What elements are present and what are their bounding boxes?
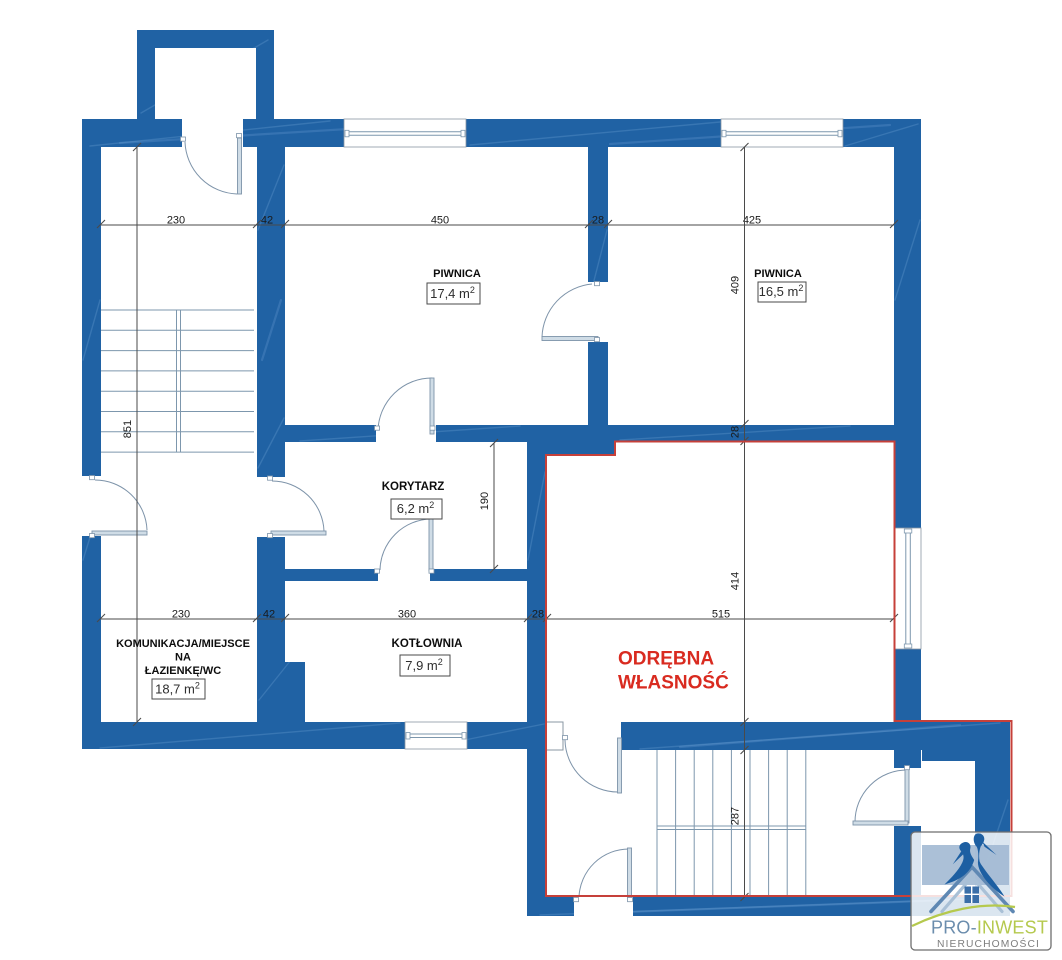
svg-text:28: 28 — [730, 426, 742, 438]
svg-text:WŁASNOŚĆ: WŁASNOŚĆ — [618, 672, 729, 694]
svg-text:190: 190 — [479, 492, 491, 510]
svg-text:PIWNICA: PIWNICA — [754, 268, 802, 280]
svg-text:42: 42 — [261, 215, 273, 227]
svg-text:450: 450 — [431, 215, 449, 227]
svg-text:ŁAZIENKĘ/WC: ŁAZIENKĘ/WC — [145, 665, 221, 677]
svg-text:28: 28 — [592, 215, 604, 227]
svg-text:230: 230 — [172, 609, 190, 621]
svg-text:PRO-INWEST: PRO-INWEST — [931, 918, 1048, 938]
svg-text:NA: NA — [175, 652, 191, 664]
svg-text:6,2 m2: 6,2 m2 — [397, 500, 435, 516]
svg-text:42: 42 — [263, 609, 275, 621]
svg-text:360: 360 — [398, 609, 416, 621]
svg-text:KORYTARZ: KORYTARZ — [382, 481, 445, 493]
svg-text:KOTŁOWNIA: KOTŁOWNIA — [392, 638, 463, 650]
svg-text:PIWNICA: PIWNICA — [433, 268, 481, 280]
svg-text:17,4 m2: 17,4 m2 — [430, 285, 475, 301]
svg-text:18,7 m2: 18,7 m2 — [155, 681, 200, 697]
svg-text:414: 414 — [730, 572, 742, 590]
svg-text:ODRĘBNA: ODRĘBNA — [618, 649, 714, 670]
svg-text:515: 515 — [712, 609, 730, 621]
svg-text:287: 287 — [730, 807, 742, 825]
svg-text:28: 28 — [532, 609, 544, 621]
svg-text:16,5 m2: 16,5 m2 — [759, 283, 804, 299]
svg-text:409: 409 — [730, 276, 742, 294]
svg-text:NIERUCHOMOŚCI: NIERUCHOMOŚCI — [937, 937, 1040, 950]
svg-text:851: 851 — [122, 420, 134, 438]
svg-text:KOMUNIKACJA/MIEJSCE: KOMUNIKACJA/MIEJSCE — [116, 638, 250, 650]
svg-text:230: 230 — [167, 215, 185, 227]
svg-text:7,9 m2: 7,9 m2 — [405, 657, 443, 673]
svg-text:425: 425 — [743, 215, 761, 227]
